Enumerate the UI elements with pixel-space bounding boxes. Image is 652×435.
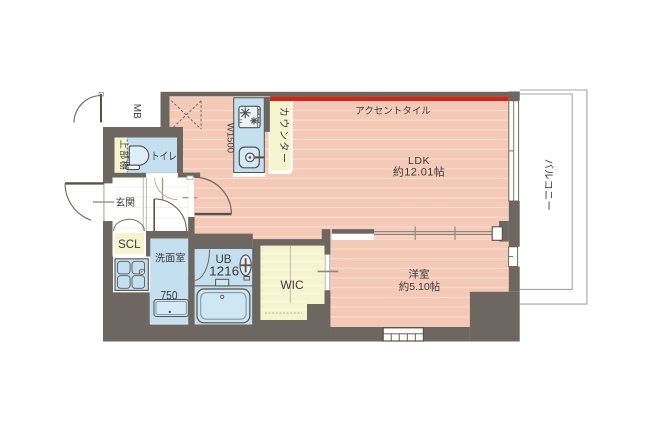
svg-text:SCL: SCL: [118, 239, 141, 251]
svg-text:バルコニー: バルコニー: [542, 159, 554, 211]
svg-text:W1500: W1500: [225, 123, 236, 153]
svg-text:上部棚: 上部棚: [119, 140, 130, 172]
svg-text:LDK: LDK: [408, 155, 430, 167]
svg-text:1216: 1216: [209, 264, 239, 278]
svg-text:750: 750: [161, 288, 178, 302]
svg-text:カウンター: カウンター: [277, 107, 289, 165]
svg-text:トイレ: トイレ: [151, 151, 177, 163]
svg-text:玄関: 玄関: [116, 196, 136, 209]
svg-text:約12.01帖: 約12.01帖: [393, 165, 445, 179]
svg-text:約5.10帖: 約5.10帖: [399, 280, 441, 293]
svg-text:洗面室: 洗面室: [155, 251, 186, 264]
svg-text:WIC: WIC: [280, 278, 304, 292]
svg-text:洋室: 洋室: [409, 268, 430, 281]
svg-text:MB: MB: [131, 104, 142, 119]
svg-text:アクセントタイル: アクセントタイル: [355, 106, 431, 117]
